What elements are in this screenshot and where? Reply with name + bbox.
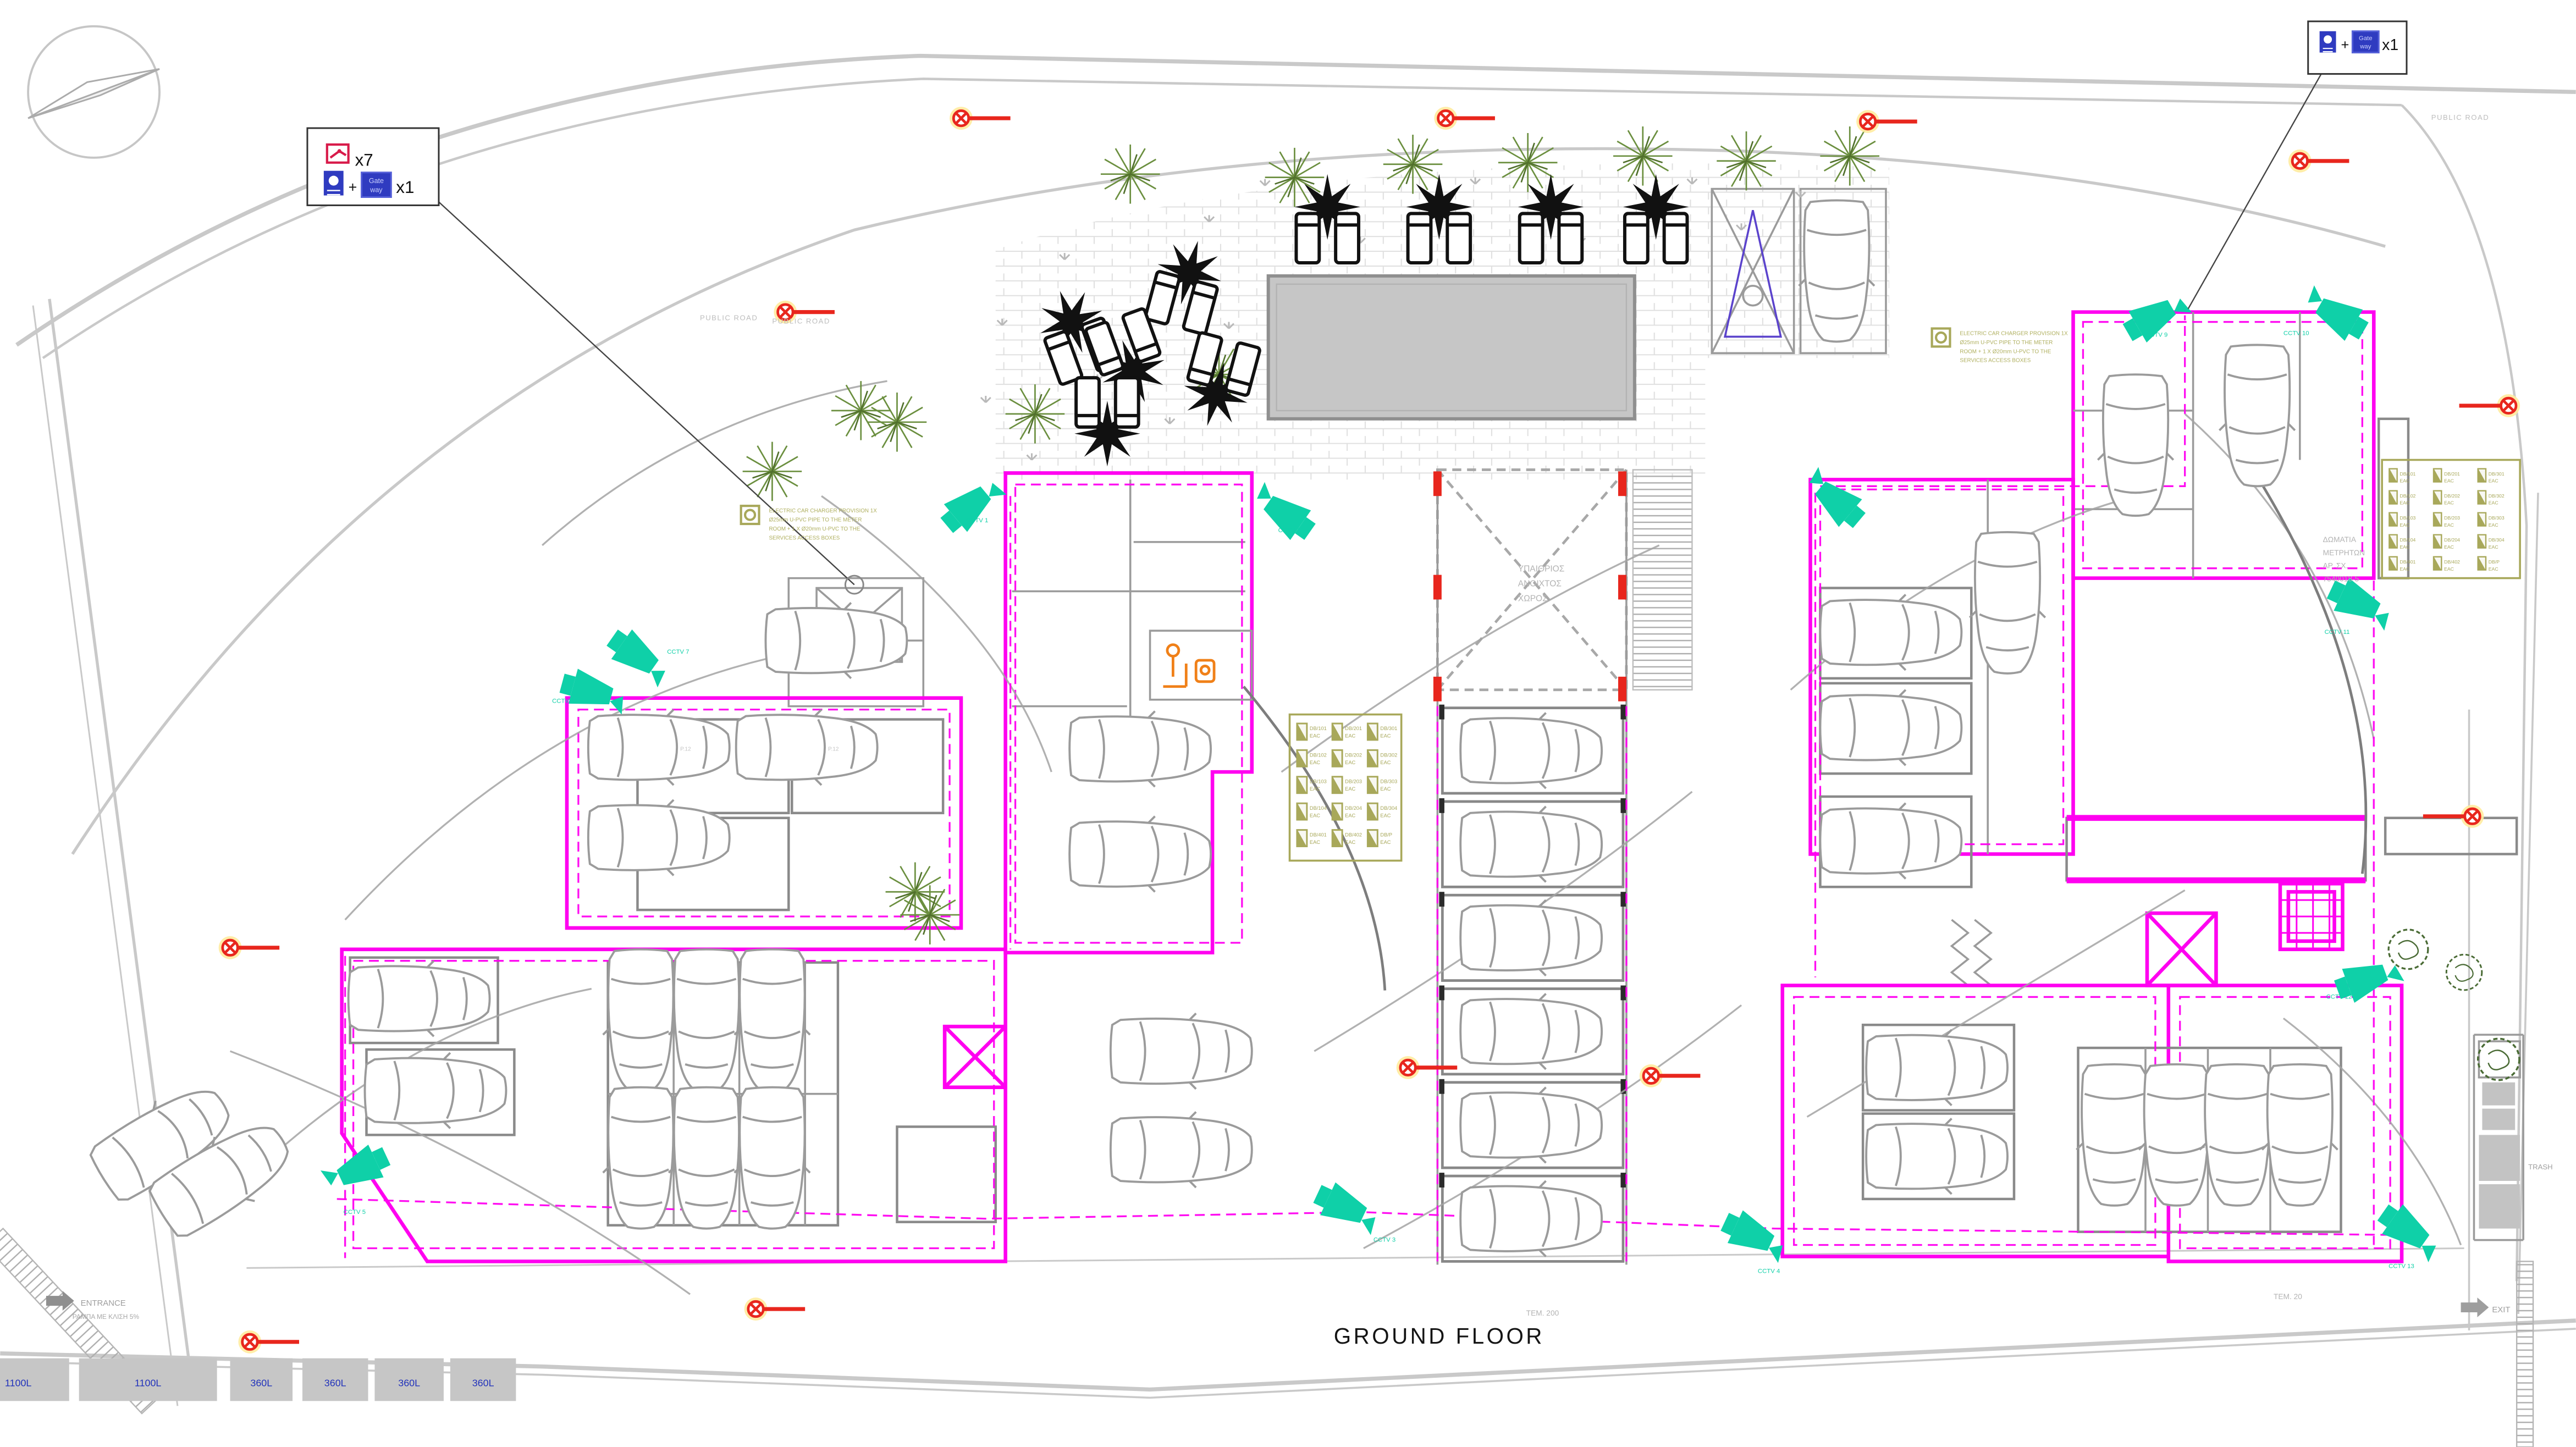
- spot-corner-tick: [1439, 892, 1444, 907]
- car: [1111, 1112, 1252, 1188]
- db-panel-supplier: EAC: [2489, 478, 2498, 484]
- light-fixture-icon: [2459, 394, 2520, 417]
- courtyard-label: ΥΠΑΙΘΡΙΟΣ: [1518, 565, 1565, 574]
- svg-text:way: way: [369, 186, 383, 194]
- set-count: x1: [396, 178, 414, 197]
- db-panel-supplier: EAC: [2444, 544, 2454, 550]
- db-panel-icon: [2389, 556, 2398, 571]
- cctv-camera-icon: [2373, 1198, 2447, 1265]
- db-panel-icon: [2477, 534, 2486, 549]
- db-panel-supplier: EAC: [1310, 840, 1320, 845]
- db-panel-supplier: EAC: [2489, 500, 2498, 506]
- page-title: GROUND FLOOR: [1334, 1323, 1545, 1349]
- db-panel-code: DB/102: [2400, 493, 2415, 499]
- svg-text:ELECTRIC CAR CHARGER PROVISION: ELECTRIC CAR CHARGER PROVISION 1X: [769, 508, 877, 514]
- db-panel-code: DB/401: [2400, 559, 2415, 565]
- light-fixture-icon: [744, 1297, 806, 1321]
- spot-corner-tick: [1439, 986, 1444, 1001]
- public-road-label: PUBLIC ROAD: [2431, 113, 2489, 121]
- cctv-label: CCTV 1: [966, 517, 988, 524]
- db-panel-icon: [2477, 556, 2486, 571]
- exit-arrow-icon: [2461, 1297, 2489, 1317]
- cctv-camera-icon: [2298, 283, 2373, 347]
- car: [736, 710, 878, 785]
- db-panel-icon: [2389, 512, 2398, 527]
- db-panel-supplier: EAC: [1345, 733, 1355, 738]
- car: [669, 949, 744, 1091]
- car: [365, 1053, 506, 1128]
- db-panel-code: DB/102: [1310, 752, 1327, 758]
- gateway-icon: Gate way: [2352, 31, 2379, 53]
- cctv-camera-icon: [935, 470, 1009, 539]
- car: [2077, 1064, 2152, 1206]
- spot-corner-tick: [1620, 1173, 1626, 1188]
- public-road-label: PUBLIC ROAD: [700, 314, 758, 322]
- set-count: x1: [2382, 36, 2398, 54]
- car: [1111, 1013, 1252, 1089]
- car: [1866, 1118, 2007, 1194]
- car: [1460, 900, 1602, 975]
- waste-bin-label: 360L: [324, 1377, 346, 1388]
- db-panel-code: DB/202: [1345, 752, 1362, 758]
- db-panel-icon: [2389, 468, 2398, 482]
- car: [735, 1087, 810, 1229]
- cctv-label: CCTV 11: [2325, 629, 2350, 636]
- cctv-camera-icon: [1310, 1178, 1384, 1238]
- db-panel-icon: [1296, 723, 1308, 741]
- cctv-camera-icon: [319, 1140, 394, 1200]
- svg-text:Gate: Gate: [2359, 35, 2373, 42]
- db-panel-code: DB/101: [2400, 471, 2415, 477]
- waste-bin-label: 360L: [250, 1377, 272, 1388]
- car: [588, 710, 730, 785]
- db-panel-code: DB/301: [2489, 471, 2505, 477]
- light-fixture-icon: [2288, 150, 2349, 173]
- db-panel-supplier: EAC: [2400, 478, 2409, 484]
- db-panel-code: DB/302: [1380, 752, 1397, 758]
- exit-label: EXIT: [2492, 1305, 2510, 1315]
- db-panel-code: DB/104: [2400, 537, 2415, 543]
- db-panel-supplier: EAC: [2400, 566, 2409, 572]
- db-panel-code: DB/101: [1310, 726, 1327, 731]
- db-panel-icon: [1332, 749, 1343, 767]
- car: [603, 1087, 679, 1229]
- spot-corner-tick: [1620, 892, 1626, 907]
- db-panel-code: DB/P: [1380, 832, 1392, 838]
- plus-sign: +: [2341, 37, 2349, 53]
- db-panel-icon: [1332, 803, 1343, 821]
- waste-bin-label: 360L: [472, 1377, 494, 1388]
- db-panel-supplier: EAC: [1310, 760, 1320, 765]
- light-fixture-icon: [1397, 1056, 1458, 1079]
- gateway-icon: Gate way: [362, 173, 391, 197]
- tree: [2446, 954, 2482, 990]
- waste-bin-label: 360L: [398, 1377, 420, 1388]
- car: [2200, 1064, 2275, 1206]
- elevator-shaft: [2280, 883, 2343, 949]
- center-parking-spots: [1442, 708, 1623, 1262]
- db-panel-icon: [2433, 556, 2442, 571]
- db-panel-icon: [2433, 468, 2442, 482]
- car: [2139, 1064, 2214, 1206]
- tree: [2478, 1039, 2519, 1080]
- db-panel-code: DB/201: [2444, 471, 2460, 477]
- db-panel-icon: [1296, 829, 1308, 847]
- db-panel-supplier: EAC: [1380, 840, 1391, 845]
- car: [2262, 1064, 2337, 1206]
- car: [1866, 1030, 2007, 1105]
- db-panel-icon: [1367, 829, 1378, 847]
- ramp-label: ΡΑΜΠΑ ΜΕ ΚΛΙΣΗ 5%: [73, 1313, 140, 1321]
- cctv-label: CCTV 12: [2326, 993, 2352, 1000]
- db-panel-supplier: EAC: [1310, 733, 1320, 738]
- light-fixture-icon: [950, 107, 1011, 130]
- db-panel-supplier: EAC: [1380, 733, 1391, 738]
- db-panel-code: DB/304: [1380, 805, 1397, 811]
- db-panel-icon: [1367, 723, 1378, 741]
- cctv-label: CCTV 3: [1374, 1237, 1395, 1244]
- svg-text:ELECTRIC CAR CHARGER PROVISION: ELECTRIC CAR CHARGER PROVISION 1X: [1960, 330, 2068, 336]
- waste-bin-label: 1100L: [5, 1377, 32, 1388]
- db-panel-icon: [2477, 512, 2486, 527]
- parking-spot-label: P.12: [828, 746, 839, 752]
- column-marker: [1433, 575, 1442, 600]
- db-panel-code: DB/301: [1380, 726, 1397, 731]
- cctv-camera-icon: [2119, 284, 2193, 349]
- db-panel-supplier: EAC: [2489, 566, 2498, 572]
- cctv-label: CCTV 9: [2145, 332, 2167, 338]
- db-panel-supplier: EAC: [2489, 522, 2498, 528]
- db-panel-icon: [1367, 776, 1378, 794]
- cctv-label: CCTV 8: [1830, 509, 1852, 516]
- db-panel-code: DB/402: [1345, 832, 1362, 838]
- car: [1069, 711, 1211, 787]
- db-panel-icon: [1367, 749, 1378, 767]
- car: [2219, 345, 2294, 486]
- db-panel-supplier: EAC: [2444, 500, 2454, 506]
- db-panel-icon: [1332, 776, 1343, 794]
- db-panel-code: DB/203: [1345, 779, 1362, 785]
- cctv-label: CCTV 4: [1758, 1268, 1780, 1274]
- palm-tree: [886, 862, 945, 921]
- db-panel-supplier: EAC: [1310, 813, 1320, 819]
- column-marker: [1618, 471, 1626, 496]
- light-fixture-icon: [1856, 110, 1917, 133]
- db-panel-code: DB/201: [1345, 726, 1362, 731]
- db-panel-supplier: EAC: [2400, 522, 2409, 528]
- waste-bins: 1100L1100L360L360L360L360L: [0, 1358, 516, 1401]
- legend-left: x7 + Gate way x1: [307, 128, 863, 594]
- svg-text:ΧΩΡΟΣ: ΧΩΡΟΣ: [1518, 594, 1548, 603]
- car: [1970, 532, 2045, 673]
- car: [1460, 807, 1602, 882]
- db-panel-icon: [2433, 534, 2442, 549]
- cctv-camera-icon: [602, 623, 677, 690]
- meter-rooms-label: ΔΩΜΑΤΙΑ: [2323, 535, 2357, 544]
- car: [1820, 690, 1961, 765]
- spot-corner-tick: [1439, 798, 1444, 813]
- spot-corner-tick: [1620, 986, 1626, 1001]
- db-panel-code: DB/204: [2444, 537, 2460, 543]
- utility-room: [1150, 631, 1252, 699]
- nvr-recorder-icon: [324, 171, 344, 196]
- db-panel-icon: [1332, 829, 1343, 847]
- car: [765, 603, 907, 678]
- ev-charger-note: ELECTRIC CAR CHARGER PROVISION 1X Ø25mm …: [1932, 329, 2068, 364]
- count-note: ΤΕΜ. 20: [2274, 1293, 2302, 1301]
- db-panel-supplier: EAC: [2400, 544, 2409, 550]
- db-panel-code: DB/103: [2400, 515, 2415, 521]
- db-panel-supplier: EAC: [2444, 522, 2454, 528]
- spot-corner-tick: [1620, 798, 1626, 813]
- palm-tree: [743, 442, 802, 501]
- cctv-label: CCTV 5: [344, 1209, 366, 1216]
- car: [2098, 374, 2173, 516]
- staircase: [897, 1126, 995, 1222]
- trash-label: TRASH: [2528, 1163, 2552, 1171]
- db-panel-icon: [1332, 723, 1343, 741]
- cctv-camera-icon: [1246, 479, 1321, 546]
- column-marker: [1618, 677, 1626, 702]
- db-panel-icon: [2433, 490, 2442, 504]
- cctv-label: CCTV 13: [2389, 1263, 2414, 1269]
- svg-text:Gate: Gate: [369, 177, 384, 185]
- svg-text:Ø25mm U-PVC PIPE TO THE METER: Ø25mm U-PVC PIPE TO THE METER: [769, 517, 862, 523]
- spot-corner-tick: [1439, 1173, 1444, 1188]
- car: [735, 949, 810, 1091]
- db-panel-code: DB/303: [1380, 779, 1397, 785]
- spot-corner-tick: [1439, 1079, 1444, 1094]
- count-note: ΤΕΜ. 200: [1526, 1309, 1559, 1317]
- entrance-label: ENTRANCE: [81, 1299, 126, 1308]
- tree: [2389, 930, 2428, 969]
- light-fixture-icon: [219, 936, 280, 959]
- db-panel-code: DB/203: [2444, 515, 2460, 521]
- db-panel-icon: [1296, 776, 1308, 794]
- column-marker: [1433, 677, 1442, 702]
- db-panel-supplier: EAC: [1345, 760, 1355, 765]
- db-panel-supplier: EAC: [2400, 500, 2409, 506]
- svg-text:Ø25mm U-PVC PIPE TO THE METER: Ø25mm U-PVC PIPE TO THE METER: [1960, 340, 2053, 346]
- db-panel-icon: [2389, 490, 2398, 504]
- db-panel-supplier: EAC: [1380, 813, 1391, 819]
- floor-plan-canvas: DB/101EACDB/201EACDB/301EACDB/102EACDB/2…: [0, 0, 2576, 1447]
- db-panel-icon: [1296, 803, 1308, 821]
- trash-enclosure: [2474, 1035, 2523, 1240]
- car: [1460, 1087, 1602, 1163]
- car: [1820, 803, 1961, 879]
- cctv-label: CCTV 7: [667, 649, 689, 655]
- camera-count: x7: [355, 151, 373, 170]
- db-panel-supplier: EAC: [1345, 786, 1355, 792]
- column-marker: [1433, 471, 1442, 496]
- spot-corner-tick: [1439, 705, 1444, 720]
- db-panel-code: DB/202: [2444, 493, 2460, 499]
- car: [603, 949, 679, 1091]
- db-panel-supplier: EAC: [2444, 566, 2454, 572]
- exit-ramp-hatch: [2517, 1261, 2533, 1447]
- car: [1460, 993, 1602, 1069]
- car: [1069, 816, 1211, 892]
- car: [1460, 713, 1602, 788]
- car: [588, 800, 730, 875]
- ev-charger-note: ELECTRIC CAR CHARGER PROVISION 1X Ø25mm …: [741, 506, 878, 541]
- groundcover-icon: [1260, 179, 1270, 186]
- palm-tree: [1101, 145, 1160, 204]
- db-panel-supplier: EAC: [2489, 544, 2498, 550]
- db-panel-code: DB/401: [1310, 832, 1327, 838]
- light-fixture-icon: [1434, 107, 1495, 130]
- cctv-label: CCTV 6: [552, 698, 574, 705]
- svg-text:7540018-5: 7540018-5: [2323, 575, 2359, 583]
- db-panel-supplier: EAC: [2444, 478, 2454, 484]
- light-fixture-icon: [2423, 805, 2484, 828]
- car: [1460, 1181, 1602, 1256]
- db-panel-icon: [2477, 490, 2486, 504]
- stair-core: [945, 1026, 1006, 1087]
- db-panel-supplier: EAC: [1380, 786, 1391, 792]
- db-panel-code: DB/P: [2489, 559, 2500, 565]
- corridor: [2067, 818, 2366, 881]
- db-panel-icon: [2433, 512, 2442, 527]
- cctv-camera-icon: [1797, 465, 1871, 534]
- light-fixture-icon: [238, 1330, 299, 1354]
- db-panel-code: DB/104: [1310, 805, 1327, 811]
- db-panel-icon: [2389, 534, 2398, 549]
- parking-spot-label: P.12: [680, 746, 691, 752]
- db-panel-supplier: EAC: [1345, 813, 1355, 819]
- light-fixture-icon: [1640, 1064, 1701, 1087]
- public-road-label: PUBLIC ROAD: [772, 317, 830, 325]
- db-panel-icon: [2477, 468, 2486, 482]
- waste-bin-label: 1100L: [135, 1377, 162, 1388]
- svg-text:way: way: [2359, 43, 2371, 50]
- nvr-recorder-icon: [2320, 31, 2336, 53]
- cctv-label: CCTV 2: [1278, 527, 1300, 534]
- svg-text:SERVICES ACCESS BOXES: SERVICES ACCESS BOXES: [1960, 358, 2031, 364]
- cctv-label: CCTV 10: [2283, 330, 2309, 336]
- plus-sign: +: [349, 179, 357, 196]
- stair-core: [2147, 913, 2216, 985]
- car: [669, 1087, 744, 1229]
- db-panel-code: DB/402: [2444, 559, 2460, 565]
- svg-text:ΑΡ. ΣΧ.: ΑΡ. ΣΧ.: [2323, 562, 2348, 570]
- db-panel-supplier: EAC: [1380, 760, 1391, 765]
- svg-text:ROOM + 1 X Ø20mm U-PVC TO THE: ROOM + 1 X Ø20mm U-PVC TO THE: [1960, 349, 2051, 355]
- spot-corner-tick: [1620, 705, 1626, 720]
- svg-text:SERVICES ACCESS BOXES: SERVICES ACCESS BOXES: [769, 535, 840, 541]
- db-panel-code: DB/103: [1310, 779, 1327, 785]
- column-marker: [1618, 575, 1626, 600]
- db-panel-code: DB/303: [2489, 515, 2505, 521]
- groundcover-icon: [981, 396, 991, 402]
- db-panel-supplier: EAC: [1345, 840, 1355, 845]
- svg-text:ROOM + 1 X Ø20mm U-PVC TO THE: ROOM + 1 X Ø20mm U-PVC TO THE: [769, 526, 860, 532]
- north-compass: [28, 26, 159, 158]
- car: [1820, 594, 1961, 670]
- db-panel-supplier: EAC: [1310, 786, 1320, 792]
- db-panel-icon: [1296, 749, 1308, 767]
- db-panel-code: DB/302: [2489, 493, 2505, 499]
- db-panel-code: DB/204: [1345, 805, 1362, 811]
- db-panel-code: DB/304: [2489, 537, 2505, 543]
- svg-text:ΑΝΟΙΧΤΟΣ: ΑΝΟΙΧΤΟΣ: [1518, 579, 1562, 589]
- swimming-pool: [1268, 276, 1635, 419]
- svg-text:ΜΕΤΡΗΤΩΝ: ΜΕΤΡΗΤΩΝ: [2323, 549, 2365, 557]
- car: [349, 961, 490, 1036]
- db-panel-icon: [1367, 803, 1378, 821]
